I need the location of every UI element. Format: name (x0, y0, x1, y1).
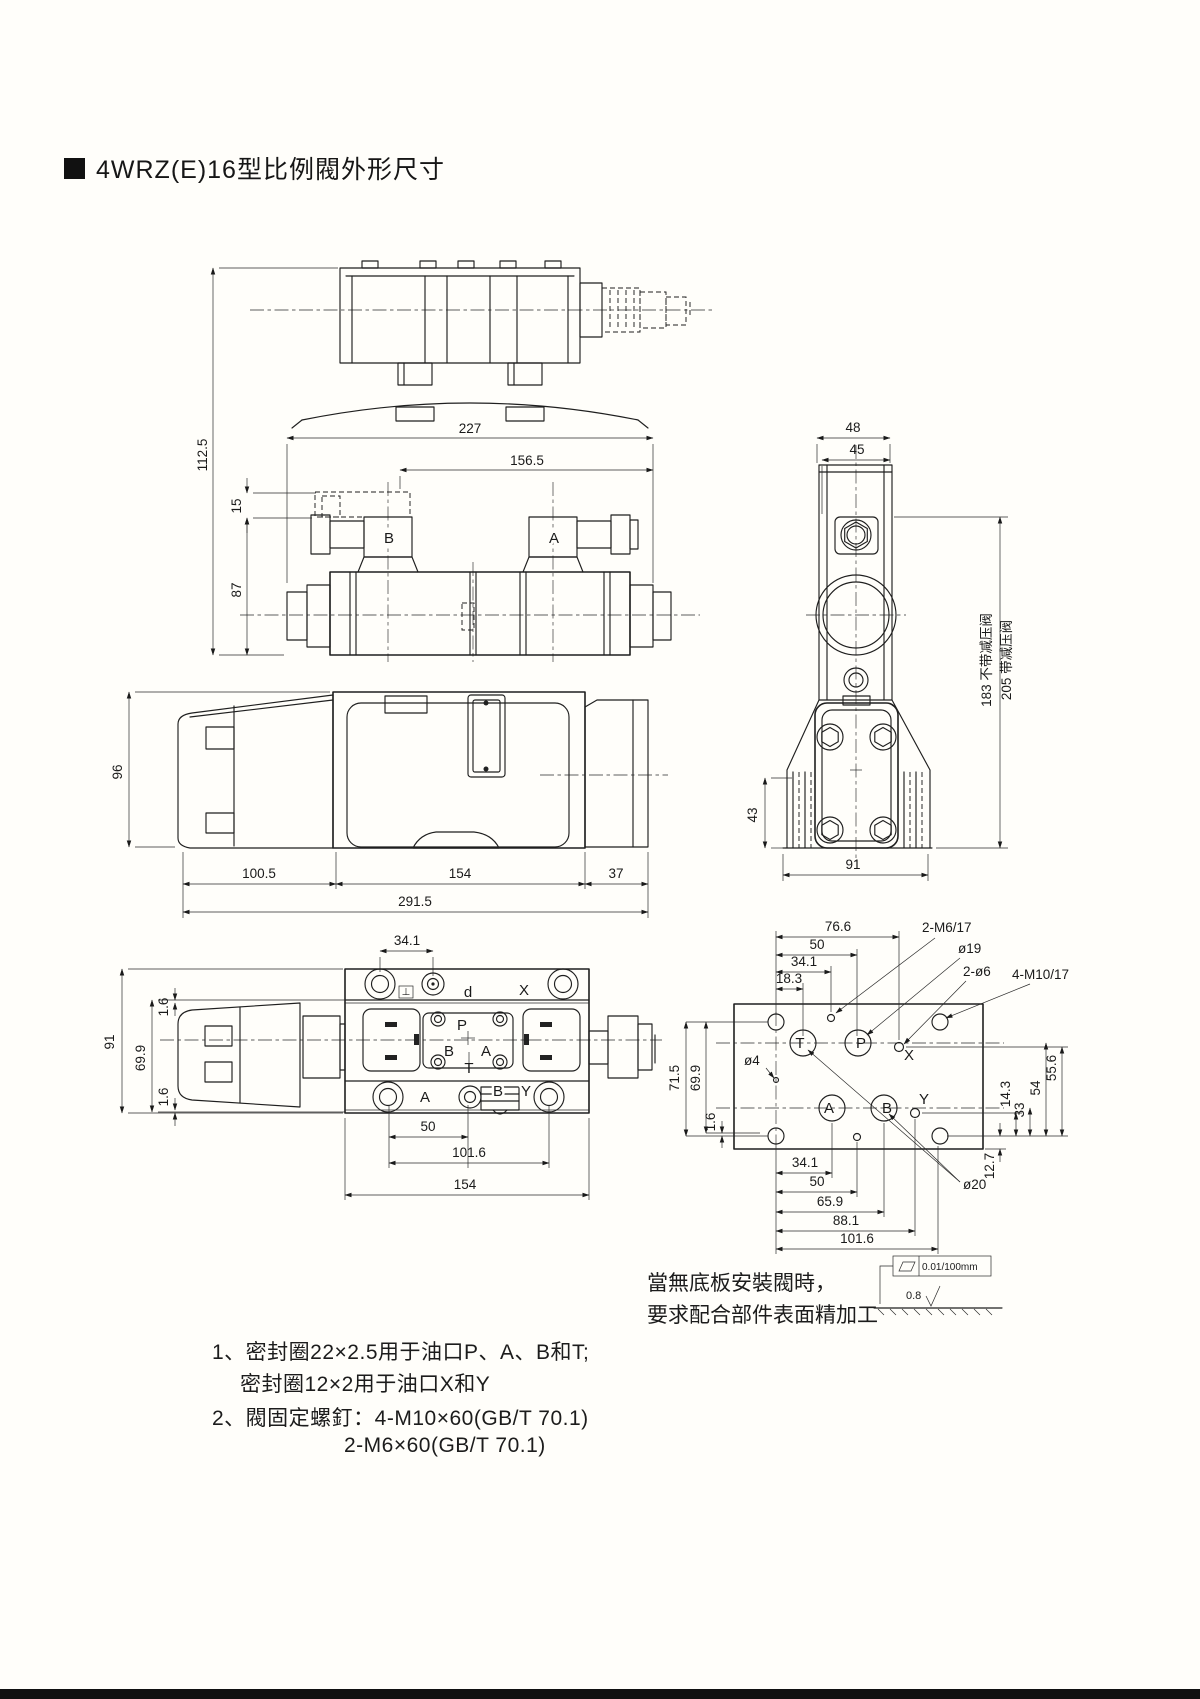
dim-71-5: 71.5 (667, 1065, 682, 1091)
port-d-label: d (464, 984, 472, 1001)
note-seal-2: 密封圈12×2用于油口X和Y (240, 1368, 490, 1398)
dim-33: 33 (1012, 1102, 1027, 1117)
port-t-label-plan: T (464, 1060, 473, 1077)
dim-101-6-plan: 101.6 (452, 1145, 486, 1160)
dim-37: 37 (608, 866, 623, 881)
drawing-page: 4WRZ(E)16型比例閥外形尺寸 (0, 0, 1200, 1699)
dim-69-9-plate: 69.9 (688, 1065, 703, 1091)
surface-finish-note: 當無底板安裝閥時， 要求配合部件表面精加工 0.01/100mm 0.8 (647, 1256, 1002, 1327)
view-side-elevation: 96 10 (110, 692, 668, 918)
plate-port-t: T (795, 1035, 804, 1052)
view-right-side: 48 45 (745, 420, 1014, 881)
dim-12-7: 12.7 (982, 1153, 997, 1179)
dim-91-plan: 91 (102, 1034, 117, 1049)
dim-227: 227 (459, 421, 482, 436)
note-seal-1: 1、密封圈22×2.5用于油口P、A、B和T; (212, 1336, 589, 1366)
port-p-label-plan: P (457, 1017, 467, 1034)
dim-76-6: 76.6 (825, 919, 851, 934)
note-screws-1: 2、閥固定螺釘：4-M10×60(GB/T 70.1) (212, 1402, 589, 1432)
port-y-label-plan: Y (521, 1083, 531, 1100)
dim-156-5: 156.5 (510, 453, 544, 468)
leader-o19: ø19 (958, 941, 981, 956)
dim-100-5: 100.5 (242, 866, 276, 881)
leader-2-m6-17: 2-M6/17 (922, 920, 972, 935)
coil-b-label: B (384, 530, 394, 547)
port-x-label-plan: X (519, 982, 529, 999)
dim-88-1: 88.1 (833, 1213, 859, 1228)
coil-a-label: A (549, 530, 559, 547)
dim-48: 48 (845, 420, 860, 435)
dim-69-9-plan: 69.9 (133, 1045, 148, 1071)
dim-91-right: 91 (845, 857, 860, 872)
dim-14-3: 14.3 (998, 1081, 1013, 1107)
plate-port-x: X (904, 1047, 914, 1064)
valve-drawing-canvas: 227 156.5 112.5 15 87 (0, 0, 1200, 1699)
dim-43: 43 (745, 807, 760, 822)
dim-112-5: 112.5 (195, 439, 210, 472)
dim-50-bottom: 50 (809, 1174, 824, 1189)
dim-34-1-bottom: 34.1 (792, 1155, 818, 1170)
dim-18-3: 18.3 (776, 971, 802, 986)
dim-34-1-plan: 34.1 (394, 933, 420, 948)
plate-port-y: Y (919, 1091, 929, 1108)
roughness-symbol: 0.8 (874, 1286, 1002, 1315)
plate-port-b: B (882, 1100, 892, 1117)
mounting-bolts (817, 724, 896, 843)
flatness-tolerance-value: 0.01/100mm (922, 1262, 978, 1273)
dim-205: 205 带减压阀 (999, 620, 1014, 700)
port-b-bottom-label: B (493, 1083, 503, 1100)
perpendicularity-symbol: ⊥ (402, 987, 411, 998)
dim-1-6-top: 1.6 (156, 998, 171, 1017)
dim-50-plan: 50 (420, 1119, 435, 1134)
dim-96: 96 (110, 764, 125, 779)
dim-65-9: 65.9 (817, 1194, 843, 1209)
leader-4-m10-17: 4-M10/17 (1012, 967, 1069, 982)
port-a-bottom-label: A (420, 1089, 430, 1106)
view-plan: 34.1 ⊥ d X (102, 933, 662, 1200)
dim-55-6: 55.6 (1044, 1055, 1059, 1081)
view-mounting-plate: T P X A B Y 76.6 50 34.1 18.3 2-M6/17 ø1… (667, 919, 1069, 1254)
dim-45: 45 (849, 442, 864, 457)
roughness-check-icon (926, 1286, 940, 1306)
leader-o4: ø4 (744, 1053, 760, 1068)
dim-87: 87 (229, 582, 244, 597)
dim-54: 54 (1028, 1080, 1043, 1096)
port-b-label-plan: B (444, 1043, 454, 1060)
page-footer-bar (0, 1689, 1200, 1699)
dim-154-plan: 154 (454, 1177, 477, 1192)
surface-note-line1: 當無底板安裝閥時， (647, 1272, 836, 1295)
plate-port-a: A (824, 1100, 834, 1117)
flatness-icon (899, 1262, 915, 1271)
dim-1-6-plate: 1.6 (703, 1113, 718, 1132)
dim-34-1-top: 34.1 (791, 954, 817, 969)
dim-154-side: 154 (449, 866, 472, 881)
dim-50-top: 50 (809, 937, 824, 952)
port-a-label-plan: A (481, 1043, 491, 1060)
dim-101-6-plate: 101.6 (840, 1231, 874, 1246)
surface-note-line2: 要求配合部件表面精加工 (647, 1304, 878, 1327)
dim-183: 183 不带减压阀 (979, 613, 994, 707)
plate-port-p: P (856, 1035, 866, 1052)
dim-1-6-bottom: 1.6 (156, 1088, 171, 1107)
dim-15: 15 (229, 498, 244, 513)
roughness-value: 0.8 (906, 1290, 921, 1302)
view-top-elevation (250, 261, 715, 428)
note-screws-2: 2-M6×60(GB/T 70.1) (344, 1434, 546, 1458)
dim-291-5: 291.5 (398, 894, 432, 909)
leader-2-o6: 2-ø6 (963, 964, 991, 979)
